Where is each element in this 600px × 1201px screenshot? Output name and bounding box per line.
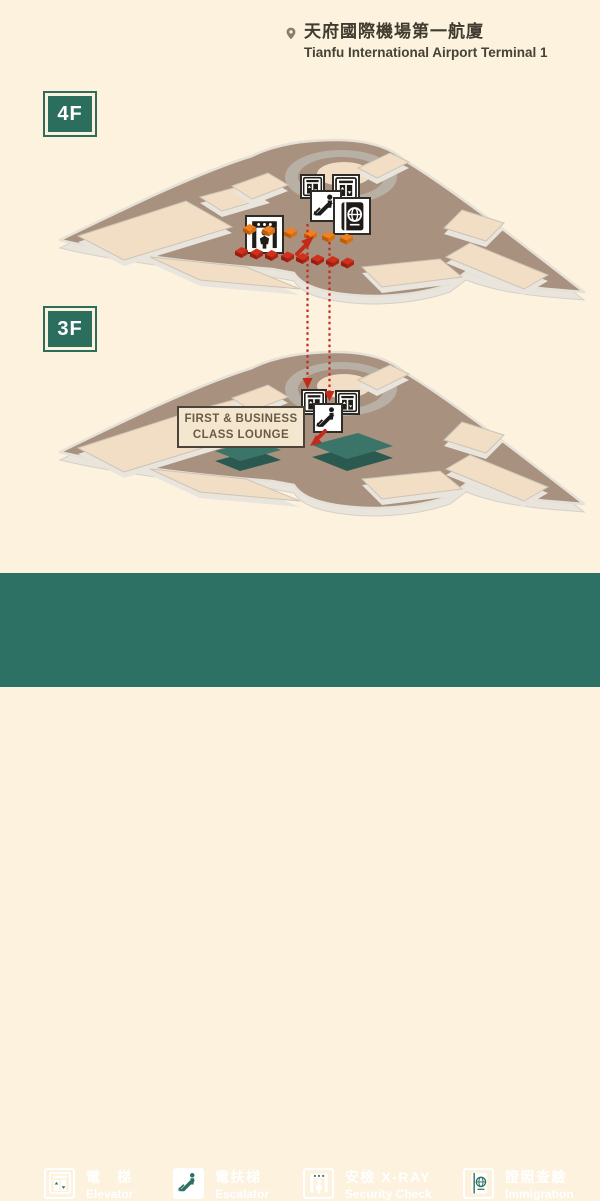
legend-label-zh: 安檢 X-RAY: [345, 1167, 432, 1187]
lounge-label-line1: FIRST & BUSINESS: [184, 411, 297, 427]
floor-badge-4f-label: 4F: [48, 96, 92, 132]
legend-item-elevator: 電 梯 Elevator: [44, 1167, 133, 1199]
floor-badge-3f: 3F: [43, 306, 97, 352]
immigration-icon: [334, 198, 370, 234]
floor-badge-3f-label: 3F: [48, 311, 92, 347]
airport-map-page: { "header": { "title_zh": "天府國際機場第一航廈", …: [0, 0, 600, 687]
legend-label-zh: 電 梯: [86, 1167, 133, 1187]
legend-item-immigration: 證照查驗 Immigration: [463, 1167, 574, 1199]
lounge-label-line2: CLASS LOUNGE: [193, 427, 289, 443]
elevator-icon: [44, 1168, 75, 1199]
legend-label-en: Escalator: [215, 1187, 269, 1201]
legend-label-en: Elevator: [86, 1187, 133, 1201]
legend-label-en: Immigration: [505, 1187, 574, 1201]
legend-bar: 電 梯 Elevator 電扶梯 Escalator 安檢 X-RAY Secu…: [0, 573, 600, 687]
terminal-map-4f: [60, 140, 584, 304]
page-title-en: Tianfu International Airport Terminal 1: [304, 45, 548, 60]
escalator-icon: [314, 404, 342, 432]
escalator-icon: [173, 1168, 204, 1199]
page-title-zh: 天府國際機場第一航廈: [304, 22, 548, 42]
legend-label-zh: 證照查驗: [505, 1167, 574, 1187]
legend-item-escalator: 電扶梯 Escalator: [173, 1167, 269, 1199]
floor-badge-4f: 4F: [43, 91, 97, 137]
page-header: 天府國際機場第一航廈 Tianfu International Airport …: [284, 22, 548, 60]
legend-item-security-check: 安檢 X-RAY Security Check: [303, 1167, 432, 1199]
legend-label-en: Security Check: [345, 1187, 432, 1201]
legend-label-zh: 電扶梯: [215, 1167, 269, 1187]
terminal-map-3f: [60, 352, 584, 516]
immigration-icon: [463, 1168, 494, 1199]
security-check-icon: [303, 1168, 334, 1199]
lounge-label: FIRST & BUSINESS CLASS LOUNGE: [177, 406, 305, 448]
location-pin-icon: [284, 24, 298, 43]
